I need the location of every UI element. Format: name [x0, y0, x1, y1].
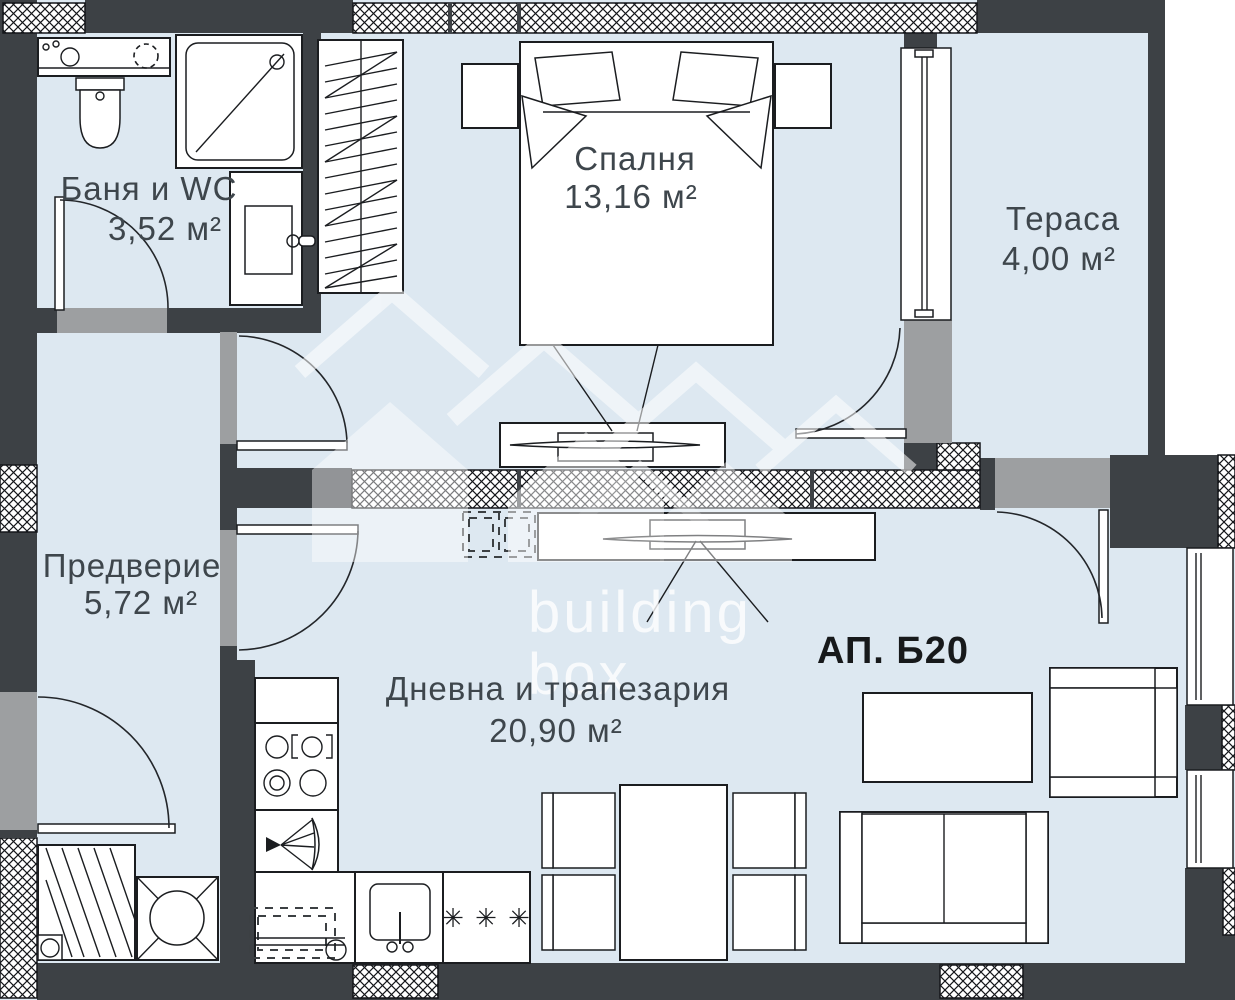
bedroom-name: Спалня: [574, 140, 695, 177]
terrace-name: Тераса: [1006, 200, 1120, 237]
shower-cabin: [176, 35, 302, 168]
bathroom-area: 3,52 м²: [108, 210, 222, 247]
nightstand-left: [462, 64, 518, 128]
toilet: [76, 78, 124, 148]
living-window-upper: [1187, 548, 1233, 705]
watermark-line1: building: [528, 580, 752, 645]
dining-table: [620, 785, 727, 960]
apartment-label: АП. Б20: [817, 630, 969, 672]
hall-name: Предверие: [43, 547, 222, 584]
living-area: 20,90 м²: [489, 712, 622, 749]
coffee-table: [863, 693, 1032, 782]
bathroom-washing-machine: [230, 172, 315, 305]
bathroom-name: Баня и WC: [61, 170, 238, 207]
hall-washing-machine: [137, 877, 218, 960]
dining-chair: [542, 875, 615, 950]
floorplan-page: ✳ ✳ ✳: [0, 0, 1235, 1000]
floorplan-drawing: ✳ ✳ ✳: [0, 0, 1235, 1000]
bathroom-sink-counter: [38, 38, 170, 76]
kitchen-counter: [255, 678, 338, 723]
hall-wardrobe: [38, 845, 135, 960]
bedroom-wardrobe: [318, 40, 403, 293]
extractor-hood: [255, 810, 338, 872]
stove: [255, 723, 338, 810]
sofa: [840, 812, 1048, 943]
nightstand-right: [775, 64, 831, 128]
dining-chair: [733, 793, 806, 868]
hall-area: 5,72 м²: [84, 584, 198, 621]
dining-chair: [733, 875, 806, 950]
living-name: Дневна и трапезария: [386, 670, 730, 707]
bedroom-area: 13,16 м²: [564, 178, 697, 215]
living-window-lower: [1187, 770, 1233, 868]
dishwasher-marks: ✳ ✳ ✳: [442, 903, 532, 933]
dining-chair: [542, 793, 615, 868]
bedroom-terrace-window: [901, 48, 951, 320]
terrace-area: 4,00 м²: [1002, 240, 1116, 277]
armchair: [1050, 668, 1177, 797]
outside-area: [1165, 0, 1235, 455]
